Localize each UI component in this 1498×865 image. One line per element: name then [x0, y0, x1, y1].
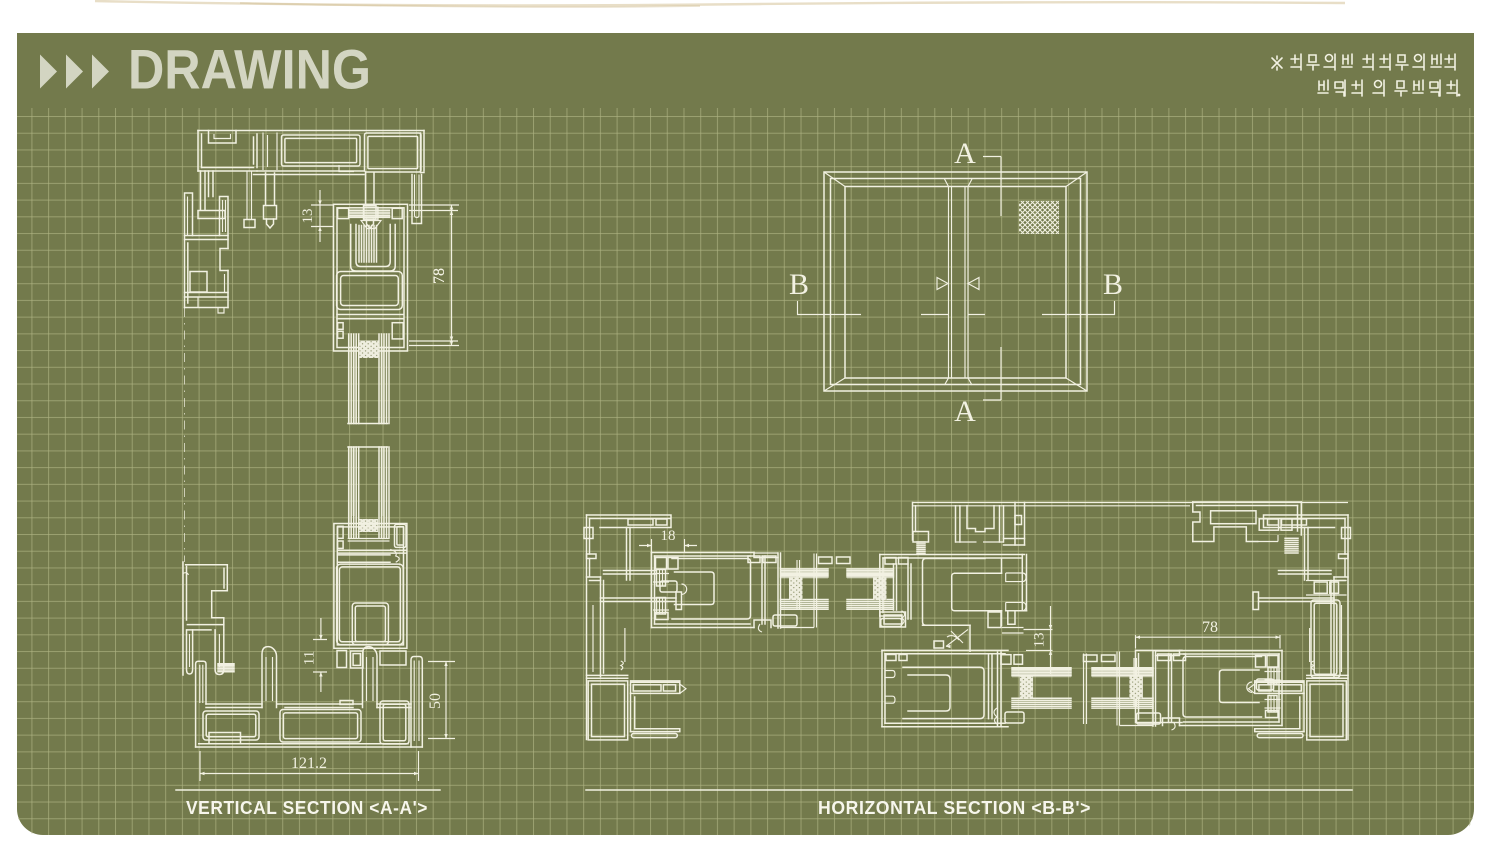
svg-text:13: 13 [1032, 633, 1048, 648]
svg-text:11: 11 [302, 651, 318, 665]
svg-text:78: 78 [1202, 619, 1218, 636]
svg-text:B: B [789, 268, 809, 301]
svg-text:A: A [954, 137, 976, 170]
svg-text:DRAWING: DRAWING [128, 38, 371, 101]
svg-text:HORIZONTAL SECTION <B-B'>: HORIZONTAL SECTION <B-B'> [818, 798, 1091, 818]
svg-text:121.2: 121.2 [291, 755, 327, 772]
svg-text:B: B [1103, 268, 1123, 301]
svg-text:18: 18 [661, 528, 676, 544]
svg-text:A: A [954, 395, 976, 428]
svg-text:13: 13 [300, 209, 316, 224]
svg-text:VERTICAL SECTION <A-A'>: VERTICAL SECTION <A-A'> [186, 798, 428, 818]
svg-text:78: 78 [431, 268, 448, 284]
svg-text:50: 50 [427, 693, 444, 709]
